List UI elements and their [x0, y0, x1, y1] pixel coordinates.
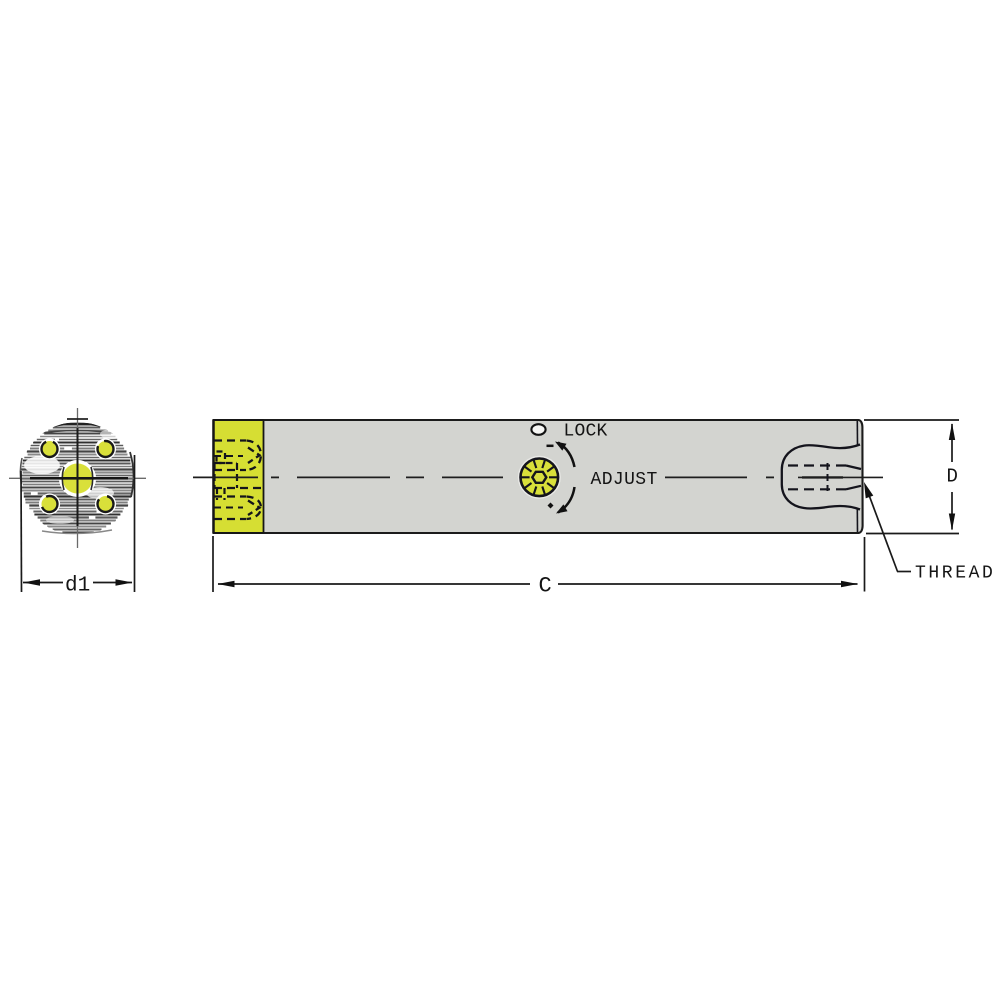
svg-text:THREAD: THREAD	[915, 564, 995, 584]
svg-text:D: D	[947, 466, 958, 488]
svg-text:C: C	[539, 574, 552, 599]
svg-text:ADJUST: ADJUST	[591, 470, 658, 490]
svg-text:d1: d1	[65, 575, 90, 598]
svg-text:LOCK: LOCK	[564, 422, 608, 442]
